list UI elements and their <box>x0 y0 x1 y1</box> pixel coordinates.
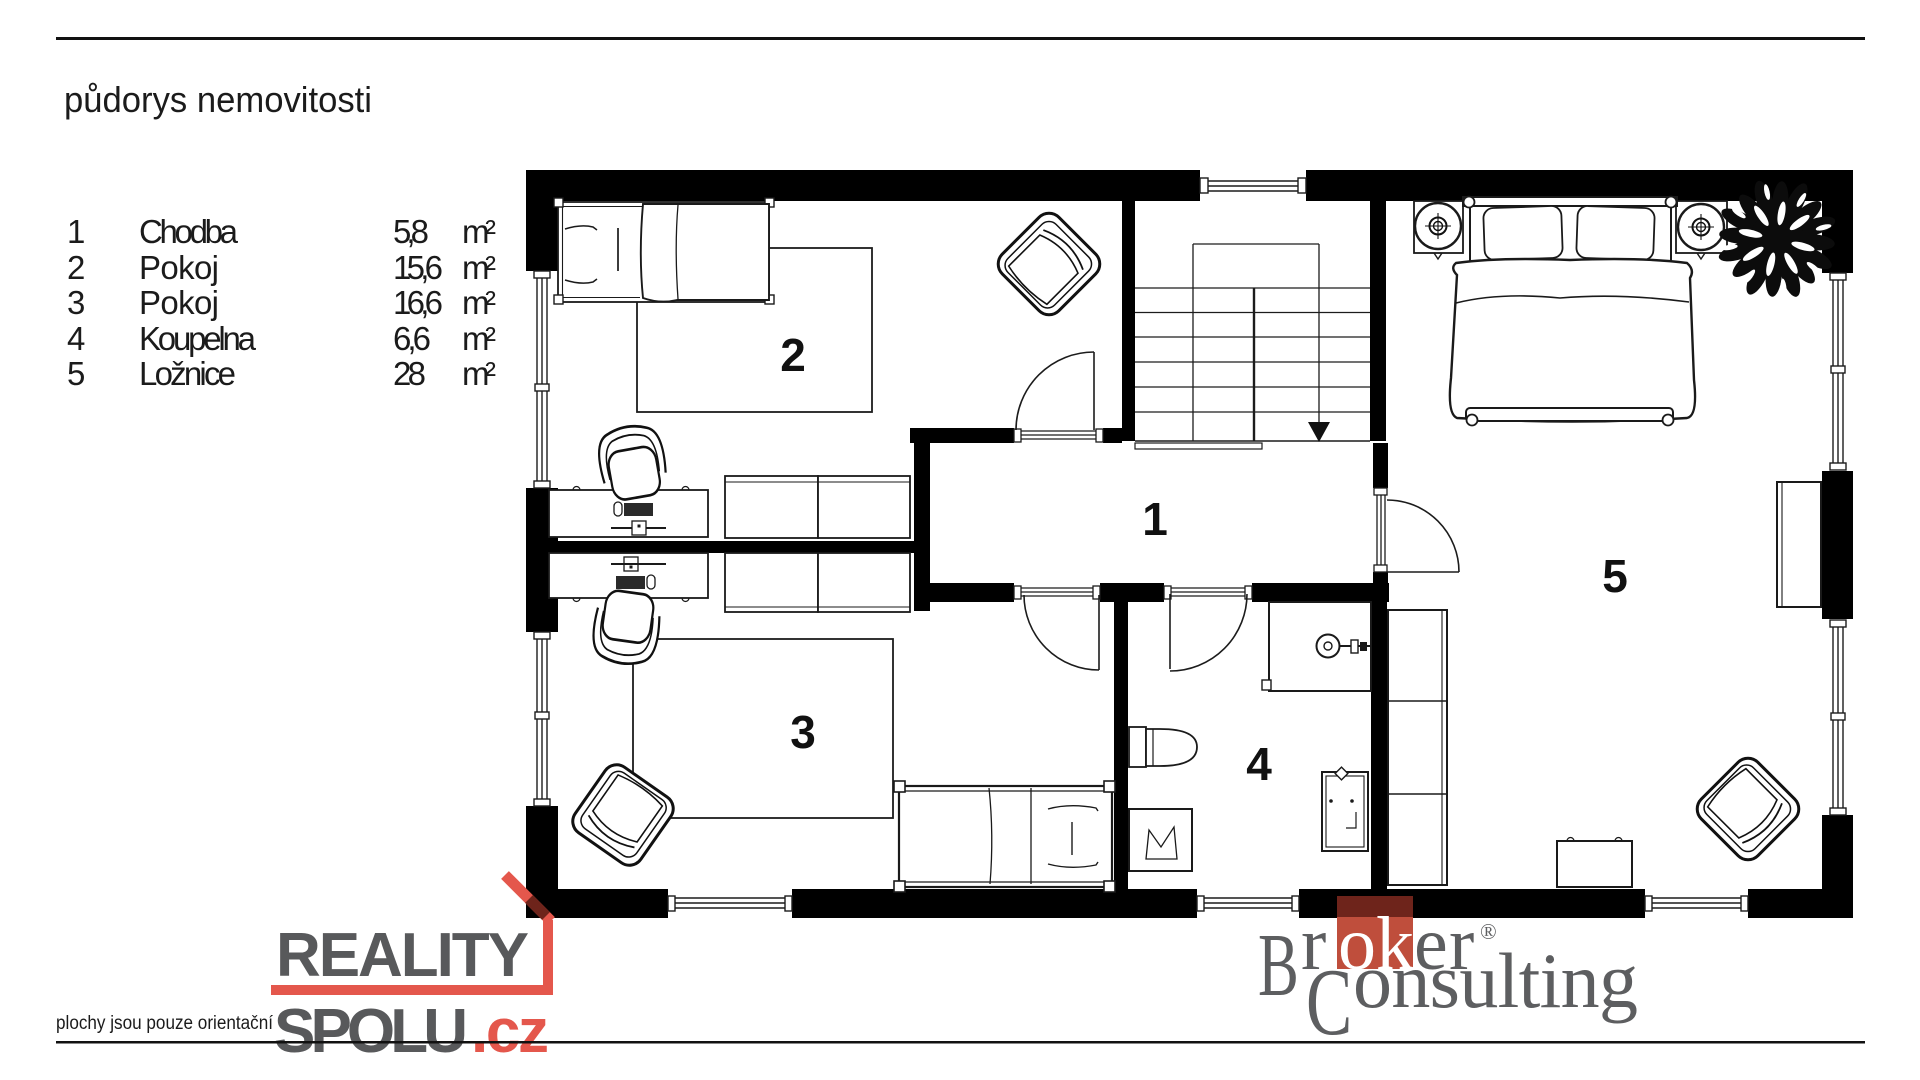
svg-text:4: 4 <box>1246 738 1272 790</box>
svg-text:B: B <box>1258 914 1299 1015</box>
svg-text:onsulting: onsulting <box>1353 937 1638 1024</box>
svg-text:půdorys nemovitosti: půdorys nemovitosti <box>64 79 372 120</box>
svg-text:6,6: 6,6 <box>393 320 431 357</box>
svg-text:m²: m² <box>462 320 496 357</box>
svg-text:m²: m² <box>462 355 496 392</box>
svg-text:15,6: 15,6 <box>393 249 443 286</box>
svg-text:SPOLU: SPOLU <box>274 997 468 1066</box>
svg-text:1: 1 <box>1142 493 1168 545</box>
svg-text:.cz: .cz <box>471 997 549 1066</box>
svg-text:16,6: 16,6 <box>393 284 443 321</box>
svg-text:5: 5 <box>1602 550 1628 602</box>
svg-text:4: 4 <box>67 320 85 357</box>
svg-text:5: 5 <box>67 355 85 392</box>
svg-text:Chodba: Chodba <box>139 213 239 250</box>
svg-text:1: 1 <box>67 213 85 250</box>
svg-text:2: 2 <box>780 329 806 381</box>
svg-text:3: 3 <box>790 706 816 758</box>
svg-text:Ložnice: Ložnice <box>139 355 236 392</box>
svg-text:2: 2 <box>67 249 85 286</box>
svg-text:5,8: 5,8 <box>393 213 429 250</box>
svg-text:Pokoj: Pokoj <box>139 284 219 321</box>
svg-text:Koupelna: Koupelna <box>139 320 257 357</box>
svg-text:m²: m² <box>462 249 496 286</box>
svg-text:m²: m² <box>462 213 496 250</box>
svg-text:Pokoj: Pokoj <box>139 249 219 286</box>
svg-text:C: C <box>1306 949 1352 1054</box>
svg-text:plochy jsou pouze orientační: plochy jsou pouze orientační <box>56 1013 274 1034</box>
svg-text:3: 3 <box>67 284 85 321</box>
svg-text:REALITY: REALITY <box>276 921 529 990</box>
svg-text:m²: m² <box>462 284 496 321</box>
svg-text:28: 28 <box>393 355 426 392</box>
